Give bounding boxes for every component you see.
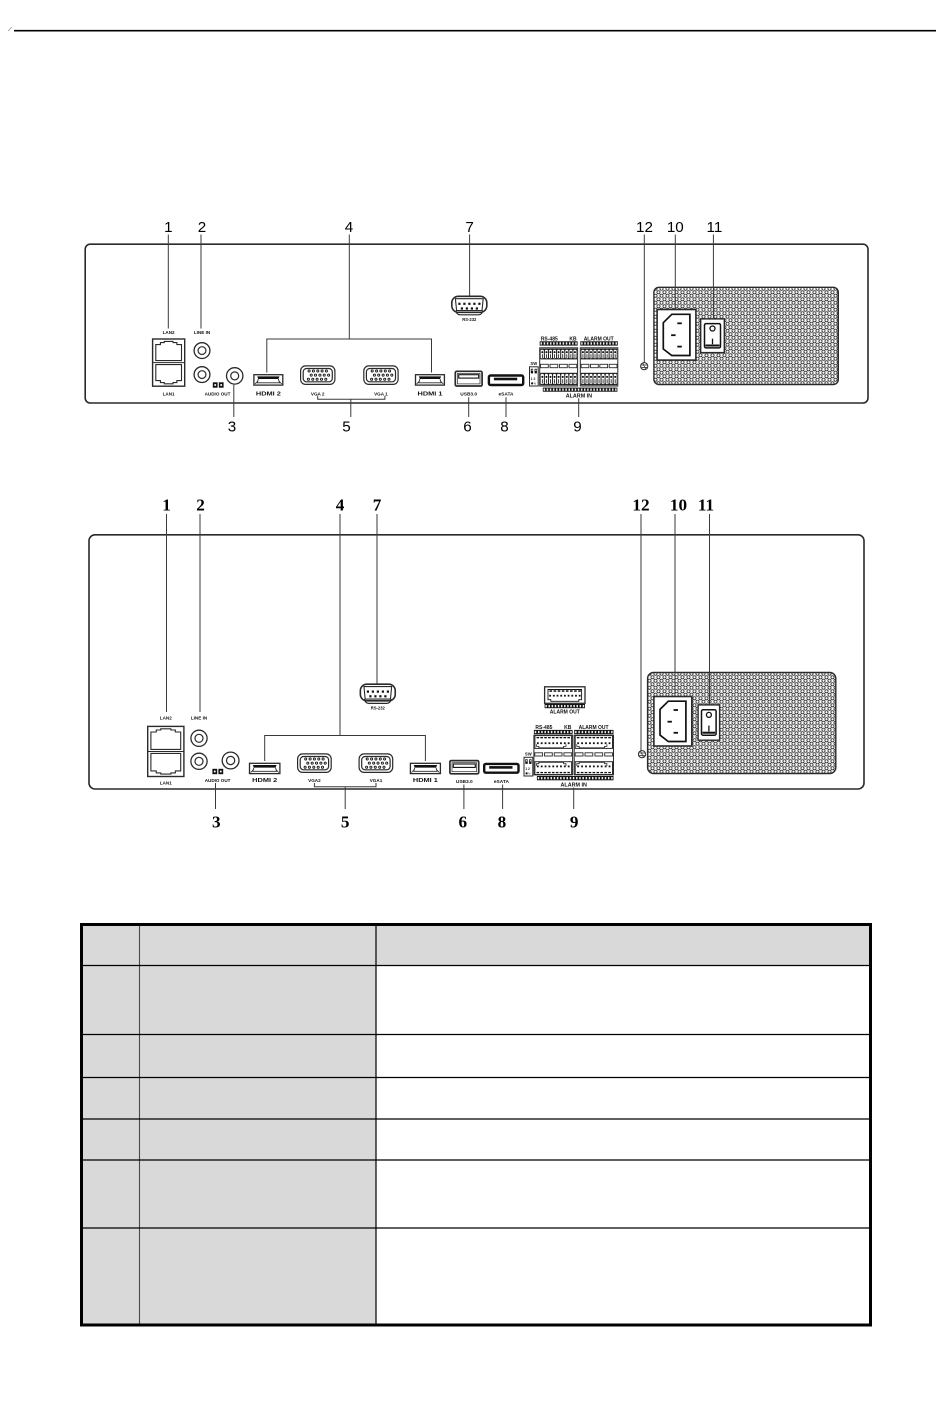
svg-text:10: 10 xyxy=(670,495,687,514)
svg-text:12: 12 xyxy=(632,495,649,514)
svg-text:2: 2 xyxy=(196,495,205,514)
svg-text:9: 9 xyxy=(570,813,579,832)
svg-text:ALARM OUT: ALARM OUT xyxy=(579,725,609,731)
svg-text:AUDIO OUT: AUDIO OUT xyxy=(205,778,231,783)
svg-text:SW: SW xyxy=(525,752,532,757)
svg-text:LINE IN: LINE IN xyxy=(191,715,208,720)
svg-text:RS-232: RS-232 xyxy=(371,705,386,710)
svg-text:3: 3 xyxy=(228,419,236,436)
svg-text:VGA 2: VGA 2 xyxy=(311,392,325,397)
svg-text:8: 8 xyxy=(498,813,507,832)
svg-text:HDMI 2: HDMI 2 xyxy=(256,392,281,398)
svg-text:RS-485: RS-485 xyxy=(535,725,552,731)
svg-text:10: 10 xyxy=(667,219,684,236)
svg-text:1: 1 xyxy=(164,219,172,236)
svg-text:LAN1: LAN1 xyxy=(163,392,175,397)
svg-text:USB3.0: USB3.0 xyxy=(460,392,477,398)
svg-text:7: 7 xyxy=(373,495,382,514)
svg-text:HDMI 2: HDMI 2 xyxy=(252,778,277,784)
svg-text:SW: SW xyxy=(530,361,537,366)
svg-text:9: 9 xyxy=(573,419,581,436)
svg-text:11: 11 xyxy=(698,495,714,514)
svg-text:eSATA: eSATA xyxy=(494,779,510,785)
svg-text:VGA2: VGA2 xyxy=(308,778,321,783)
svg-text:6: 6 xyxy=(459,813,468,832)
svg-text:RS-232: RS-232 xyxy=(462,317,477,322)
svg-text:LAN1: LAN1 xyxy=(160,780,172,785)
svg-text:KB: KB xyxy=(564,725,572,731)
svg-text:5: 5 xyxy=(342,419,350,436)
svg-text:VGA 1: VGA 1 xyxy=(374,392,388,397)
svg-text:6: 6 xyxy=(463,419,471,436)
svg-text:1 2: 1 2 xyxy=(531,377,536,381)
svg-text:HDMI 1: HDMI 1 xyxy=(418,392,443,398)
svg-text:4: 4 xyxy=(336,495,345,514)
svg-text:LINE IN: LINE IN xyxy=(194,330,211,335)
svg-text:N: N xyxy=(528,772,530,776)
svg-text:LAN2: LAN2 xyxy=(160,715,172,720)
svg-text:3: 3 xyxy=(212,813,221,832)
svg-text:12: 12 xyxy=(636,219,653,236)
svg-text:N: N xyxy=(534,382,536,386)
svg-text:2: 2 xyxy=(198,219,206,236)
svg-text:LAN2: LAN2 xyxy=(163,330,175,335)
svg-text:USB3.0: USB3.0 xyxy=(456,779,473,785)
svg-text:VGA1: VGA1 xyxy=(370,778,383,783)
svg-text:eSATA: eSATA xyxy=(498,392,514,398)
svg-text:8: 8 xyxy=(500,419,508,436)
svg-text:7: 7 xyxy=(465,219,473,236)
svg-text:11: 11 xyxy=(707,219,723,236)
svg-text:4: 4 xyxy=(345,219,353,236)
svg-text:HDMI 1: HDMI 1 xyxy=(413,778,438,784)
svg-text:ALARM IN: ALARM IN xyxy=(561,782,587,788)
svg-text:1 2: 1 2 xyxy=(525,767,530,771)
svg-text:AUDIO OUT: AUDIO OUT xyxy=(205,392,231,397)
svg-text:1: 1 xyxy=(162,495,171,514)
svg-text:5: 5 xyxy=(341,813,350,832)
svg-text:ALARM OUT: ALARM OUT xyxy=(550,710,580,716)
